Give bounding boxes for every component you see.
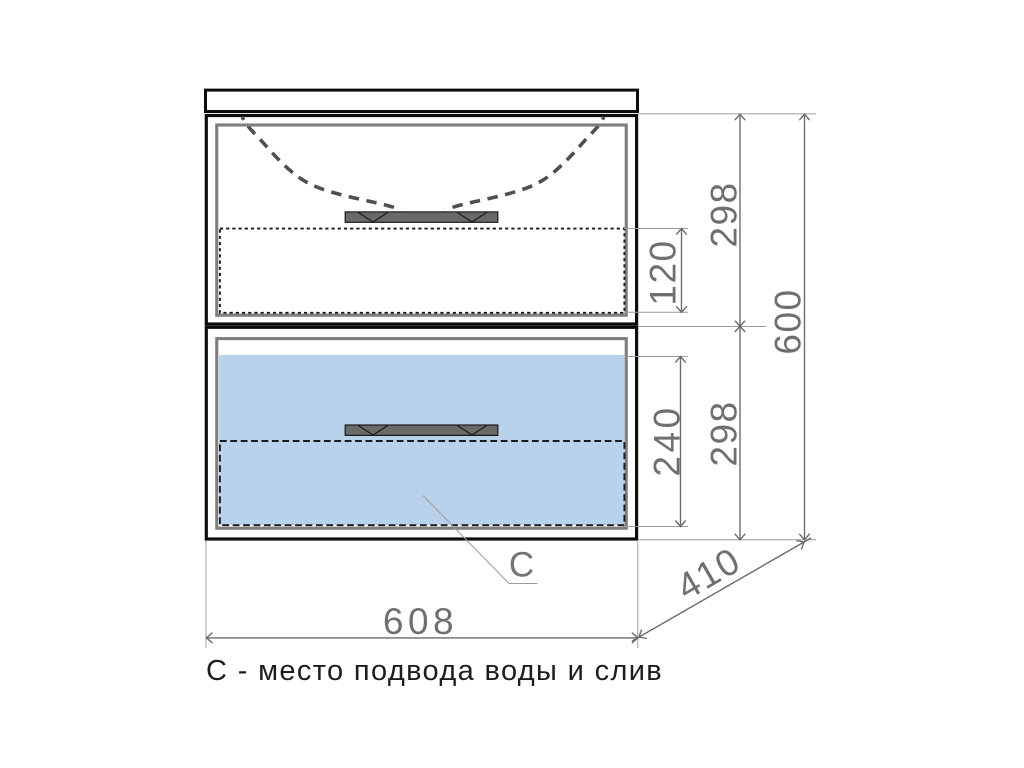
svg-text:298: 298	[703, 181, 744, 247]
svg-text:298: 298	[703, 400, 744, 466]
svg-text:608: 608	[383, 601, 458, 642]
svg-text:С: С	[509, 546, 534, 585]
svg-text:240: 240	[646, 404, 687, 476]
svg-text:С - место подвода воды и слив: С - место подвода воды и слив	[206, 655, 663, 687]
svg-text:120: 120	[642, 239, 683, 305]
svg-text:600: 600	[767, 288, 808, 354]
